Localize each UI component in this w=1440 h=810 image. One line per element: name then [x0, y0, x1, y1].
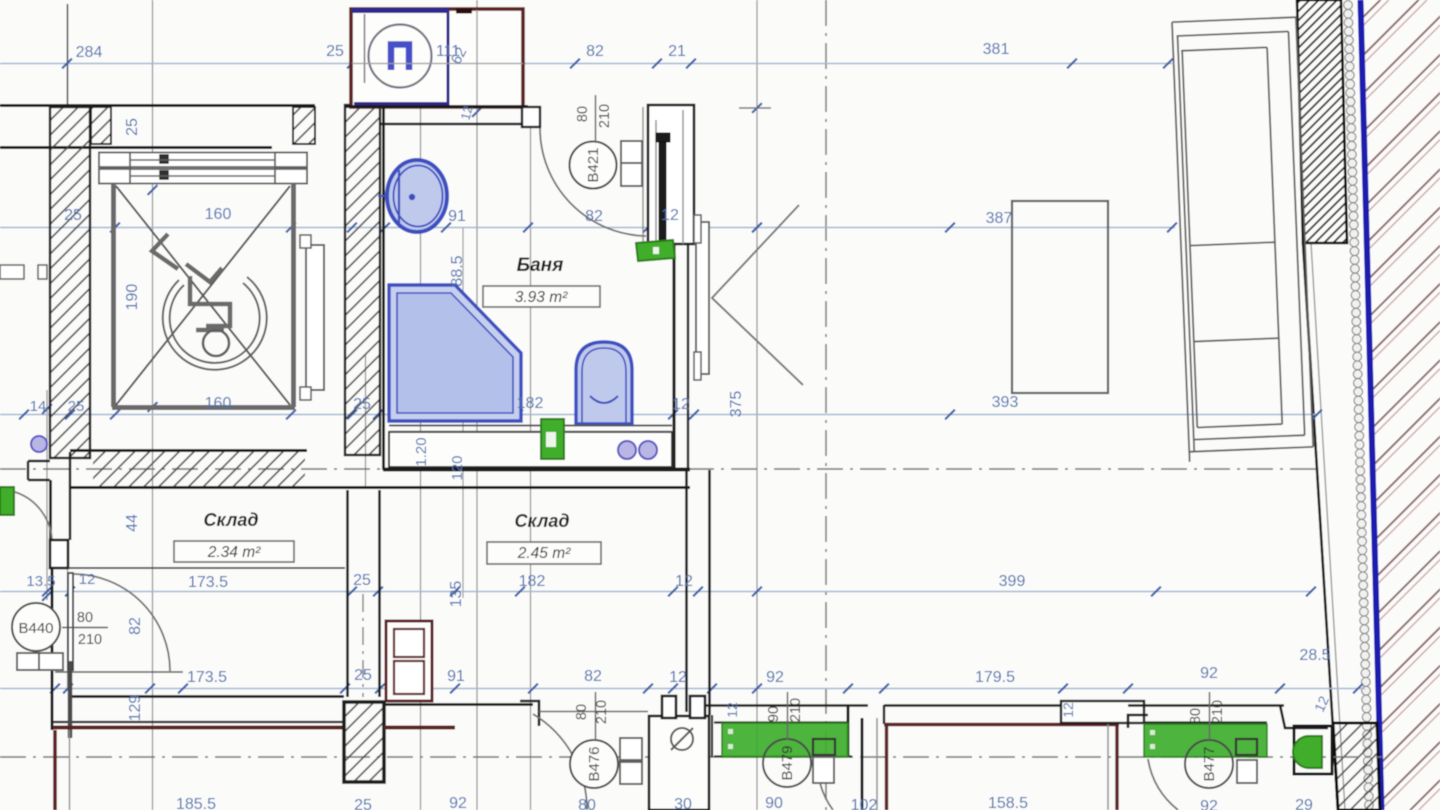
svg-text:B421: B421 [585, 147, 602, 182]
svg-text:210: 210 [78, 632, 102, 648]
svg-text:12: 12 [661, 207, 679, 224]
svg-text:210: 210 [594, 700, 610, 724]
svg-text:160: 160 [205, 206, 232, 223]
svg-text:21: 21 [668, 43, 686, 60]
svg-text:Баня: Баня [517, 255, 564, 276]
svg-text:80: 80 [578, 797, 596, 810]
svg-text:399: 399 [999, 573, 1026, 590]
svg-text:14: 14 [30, 398, 47, 415]
svg-text:12: 12 [724, 702, 740, 718]
svg-text:12: 12 [1060, 702, 1076, 718]
svg-text:210: 210 [1210, 700, 1226, 724]
svg-text:387: 387 [986, 210, 1013, 227]
svg-text:82: 82 [585, 208, 603, 225]
svg-text:91: 91 [448, 208, 466, 225]
svg-text:158.5: 158.5 [988, 795, 1028, 810]
svg-text:80: 80 [1188, 708, 1204, 724]
svg-text:25: 25 [326, 43, 344, 60]
svg-text:12: 12 [675, 573, 693, 590]
svg-text:B477: B477 [1201, 746, 1218, 781]
svg-text:102: 102 [851, 797, 878, 810]
svg-text:92: 92 [766, 669, 784, 686]
svg-text:1.20: 1.20 [413, 437, 430, 466]
svg-text:82: 82 [586, 43, 604, 60]
svg-text:381: 381 [983, 41, 1010, 58]
svg-text:12: 12 [79, 571, 96, 588]
svg-text:13.5: 13.5 [26, 573, 55, 590]
svg-text:2.34 m²: 2.34 m² [207, 544, 261, 561]
svg-text:80: 80 [575, 106, 591, 122]
svg-text:92: 92 [449, 795, 467, 810]
svg-text:179.5: 179.5 [975, 669, 1015, 686]
svg-text:185.5: 185.5 [176, 796, 216, 810]
svg-text:2.45 m²: 2.45 m² [517, 545, 571, 562]
svg-text:92: 92 [1200, 665, 1218, 682]
svg-text:135: 135 [448, 581, 465, 608]
svg-text:80: 80 [77, 610, 93, 626]
svg-text:44: 44 [124, 514, 141, 532]
svg-text:82: 82 [127, 617, 144, 635]
svg-text:375: 375 [728, 391, 745, 418]
svg-text:210: 210 [788, 698, 804, 722]
svg-text:90: 90 [766, 706, 782, 722]
svg-text:393: 393 [992, 394, 1019, 411]
svg-text:82: 82 [584, 668, 602, 685]
svg-text:25: 25 [64, 207, 82, 224]
svg-text:120: 120 [449, 455, 466, 480]
svg-text:190: 190 [124, 284, 141, 311]
svg-text:29: 29 [1295, 797, 1313, 810]
svg-text:92: 92 [1200, 798, 1218, 810]
svg-text:25: 25 [354, 797, 372, 810]
svg-text:88.5: 88.5 [449, 255, 466, 286]
svg-text:25: 25 [124, 118, 141, 136]
svg-text:B479: B479 [779, 745, 796, 780]
svg-text:12: 12 [669, 669, 687, 686]
svg-text:Склад: Склад [204, 510, 259, 530]
svg-text:3.93 m²: 3.93 m² [515, 289, 568, 306]
svg-text:91: 91 [447, 668, 465, 685]
svg-text:173.5: 173.5 [187, 669, 227, 686]
svg-text:30: 30 [674, 796, 692, 810]
svg-text:Склад: Склад [515, 511, 570, 531]
svg-text:28.5: 28.5 [1299, 647, 1330, 664]
svg-text:160: 160 [205, 395, 232, 412]
svg-text:25: 25 [68, 398, 85, 415]
svg-text:90: 90 [765, 795, 783, 810]
svg-text:25: 25 [353, 396, 371, 413]
svg-text:210: 210 [597, 104, 613, 128]
svg-text:182: 182 [517, 395, 544, 412]
svg-text:12: 12 [672, 396, 690, 413]
svg-text:129: 129 [127, 695, 144, 722]
svg-text:173.5: 173.5 [188, 574, 228, 591]
svg-text:80: 80 [574, 704, 590, 720]
svg-text:B440: B440 [18, 620, 53, 637]
svg-text:182: 182 [519, 573, 546, 590]
svg-text:284: 284 [76, 44, 103, 61]
svg-text:B476: B476 [586, 746, 603, 781]
svg-text:25: 25 [354, 667, 372, 684]
svg-text:25: 25 [353, 572, 371, 589]
